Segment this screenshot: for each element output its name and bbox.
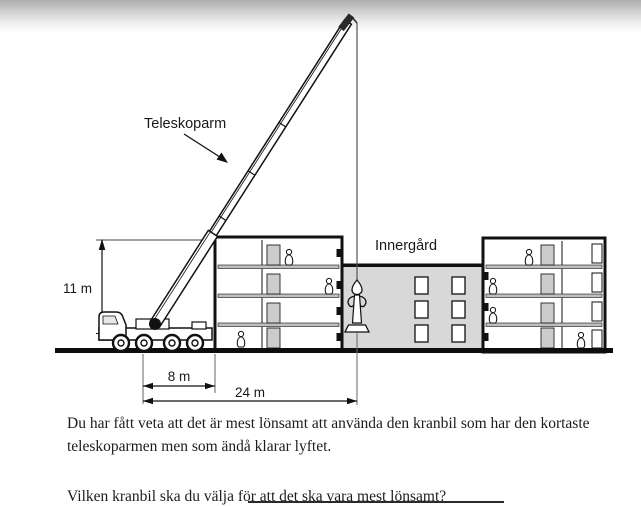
building-left-section bbox=[215, 237, 342, 350]
dim-span-label: 24 m bbox=[235, 385, 265, 400]
boom-rest bbox=[192, 322, 206, 329]
person-figure bbox=[489, 307, 497, 323]
floor-slab bbox=[486, 265, 602, 269]
load-stem bbox=[353, 295, 362, 323]
problem-paragraph: Du har fått veta att det är mest lönsamt… bbox=[67, 412, 627, 458]
floor-slab bbox=[486, 323, 602, 327]
person-figure bbox=[525, 249, 533, 265]
boom-pivot bbox=[149, 318, 161, 330]
paragraph-line: teleskoparmen men som ändå klarar lyftet… bbox=[67, 435, 627, 458]
cab-window bbox=[103, 316, 118, 324]
person-figure bbox=[577, 332, 585, 348]
arm-label: Teleskoparm bbox=[144, 116, 226, 132]
load-base bbox=[345, 325, 369, 332]
person-figure bbox=[325, 278, 333, 294]
courtyard-wall bbox=[342, 264, 483, 349]
dimension-24m: 24 m bbox=[143, 385, 357, 404]
building-right-section bbox=[483, 238, 605, 352]
person-figure bbox=[489, 278, 497, 294]
dimension-8m: 8 m bbox=[143, 369, 215, 389]
floor-slab bbox=[218, 323, 339, 327]
textbook-page: 11 m 8 m 24 m bbox=[0, 0, 641, 506]
crane-lift-diagram: 11 m 8 m 24 m bbox=[0, 0, 641, 412]
dim-height-label: 11 m bbox=[63, 281, 92, 296]
arm-label-arrow bbox=[184, 134, 228, 163]
floor-slab bbox=[486, 294, 602, 298]
courtyard-label: Innergård bbox=[375, 238, 437, 254]
dim-offset-label: 8 m bbox=[168, 369, 191, 384]
paragraph-line: Du har fått veta att det är mest lönsamt… bbox=[67, 412, 627, 435]
floor-slab bbox=[218, 265, 339, 269]
person-figure bbox=[237, 331, 245, 347]
boom-base-section bbox=[150, 230, 217, 327]
floor-slab bbox=[218, 294, 339, 298]
answer-blank-line bbox=[248, 501, 504, 503]
person-figure bbox=[285, 249, 293, 265]
